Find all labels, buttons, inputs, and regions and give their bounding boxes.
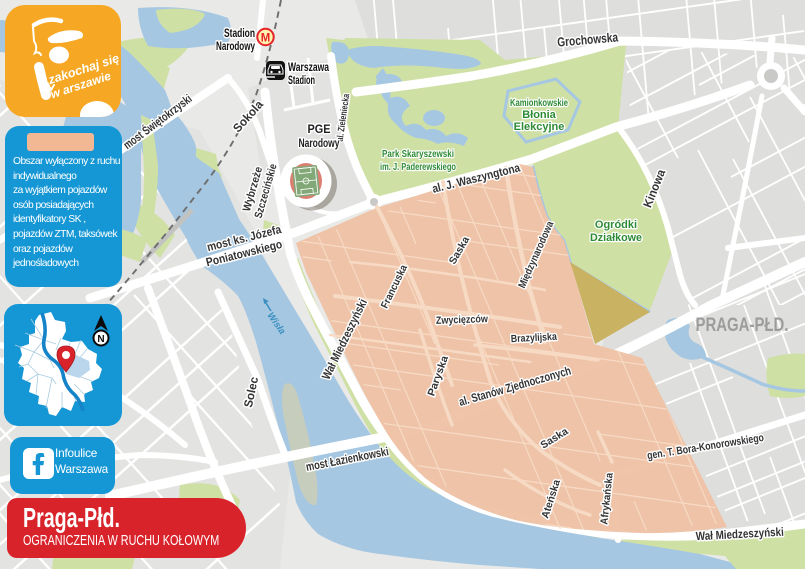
svg-text:Zwycięzców: Zwycięzców bbox=[436, 313, 489, 327]
svg-text:Park Skaryszewski: Park Skaryszewski bbox=[382, 148, 454, 160]
svg-text:im. J. Paderewskiego: im. J. Paderewskiego bbox=[380, 161, 456, 173]
svg-text:Narodowy: Narodowy bbox=[216, 41, 255, 53]
svg-text:PRAGA-PŁD.: PRAGA-PŁD. bbox=[696, 315, 789, 336]
svg-text:Ogródki: Ogródki bbox=[595, 219, 637, 231]
svg-text:M: M bbox=[261, 31, 271, 45]
svg-text:N: N bbox=[97, 334, 104, 345]
svg-text:Warszawa: Warszawa bbox=[288, 62, 329, 74]
svg-text:Stadion: Stadion bbox=[224, 28, 255, 40]
svg-text:Działkowe: Działkowe bbox=[590, 232, 642, 244]
svg-text:Elekcyjne: Elekcyjne bbox=[514, 121, 565, 133]
svg-text:Brazylijska: Brazylijska bbox=[511, 331, 558, 345]
svg-text:Kamionkowskie: Kamionkowskie bbox=[510, 98, 568, 109]
svg-text:Błonia: Błonia bbox=[522, 109, 556, 121]
svg-text:Stadion: Stadion bbox=[288, 75, 315, 87]
svg-text:Narodowy: Narodowy bbox=[299, 138, 340, 150]
svg-text:PGE: PGE bbox=[308, 124, 331, 136]
